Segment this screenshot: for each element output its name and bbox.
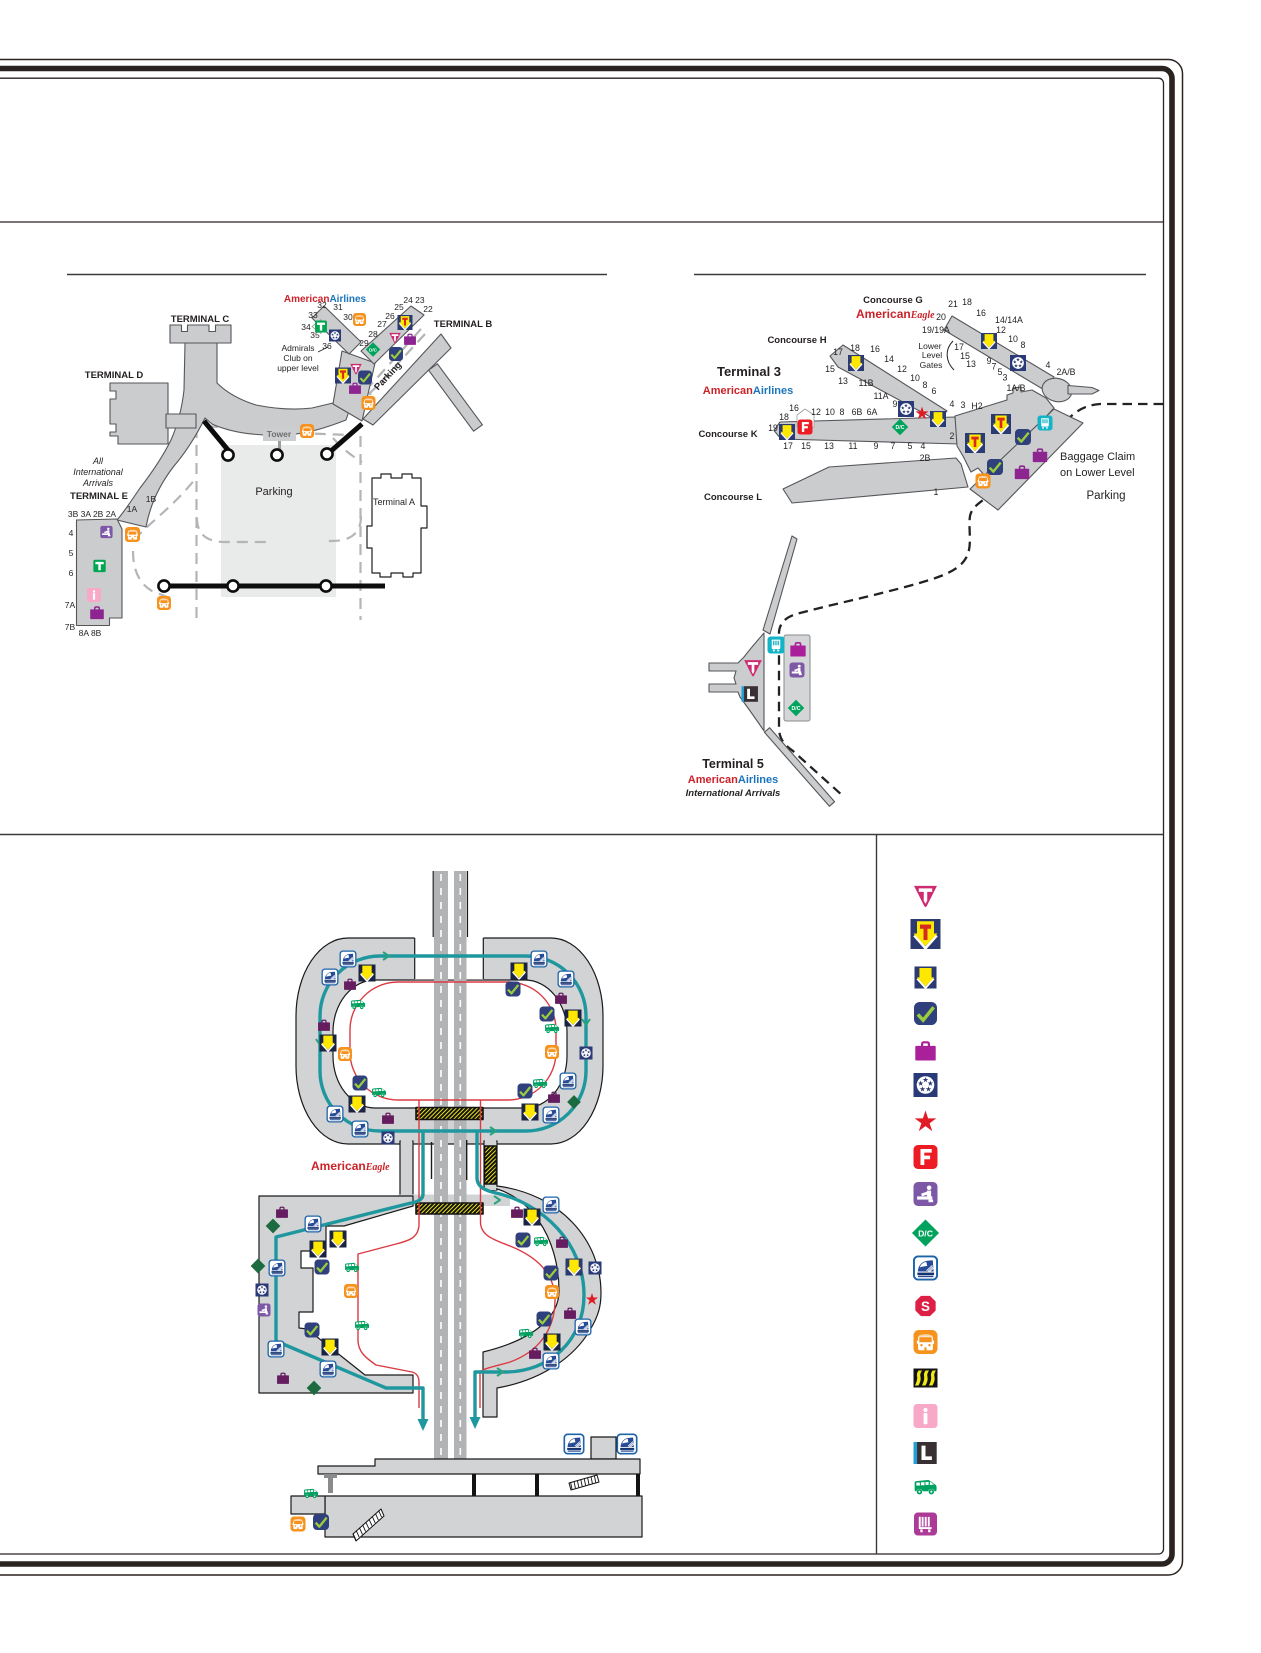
svg-text:13: 13 bbox=[824, 441, 834, 451]
svg-text:All: All bbox=[92, 456, 104, 466]
svg-text:31: 31 bbox=[333, 302, 343, 312]
svg-text:Baggage Claim: Baggage Claim bbox=[1060, 451, 1135, 463]
svg-text:14: 14 bbox=[884, 354, 894, 364]
svg-text:7B: 7B bbox=[65, 622, 76, 632]
svg-text:16: 16 bbox=[789, 403, 799, 413]
svg-text:Concourse K: Concourse K bbox=[698, 429, 757, 440]
svg-text:25: 25 bbox=[394, 302, 404, 312]
svg-text:4: 4 bbox=[69, 528, 74, 538]
svg-text:17: 17 bbox=[783, 441, 793, 451]
svg-text:5: 5 bbox=[908, 441, 913, 451]
svg-text:33: 33 bbox=[308, 310, 318, 320]
svg-text:27: 27 bbox=[377, 319, 387, 329]
svg-text:6: 6 bbox=[932, 386, 937, 396]
svg-text:16: 16 bbox=[870, 344, 880, 354]
svg-text:3B 3A 2B 2A: 3B 3A 2B 2A bbox=[68, 509, 117, 519]
svg-text:16: 16 bbox=[976, 308, 986, 318]
svg-text:Concourse G: Concourse G bbox=[863, 295, 923, 306]
svg-text:2: 2 bbox=[950, 431, 955, 441]
svg-text:14/14A: 14/14A bbox=[995, 315, 1023, 325]
svg-text:6: 6 bbox=[69, 568, 74, 578]
svg-text:22: 22 bbox=[423, 304, 433, 314]
svg-text:3: 3 bbox=[1003, 373, 1008, 383]
svg-text:TERMINAL B: TERMINAL B bbox=[434, 319, 493, 330]
svg-text:1: 1 bbox=[934, 487, 939, 497]
svg-text:TERMINAL C: TERMINAL C bbox=[171, 314, 230, 325]
svg-text:9: 9 bbox=[874, 441, 879, 451]
svg-text:AmericanAirlines: AmericanAirlines bbox=[703, 385, 794, 397]
svg-text:Level: Level bbox=[922, 350, 942, 360]
svg-text:International Arrivals: International Arrivals bbox=[686, 788, 781, 799]
svg-text:1A/B: 1A/B bbox=[1006, 383, 1025, 393]
svg-text:6B: 6B bbox=[852, 407, 863, 417]
svg-text:4: 4 bbox=[921, 441, 926, 451]
svg-text:on Lower Level: on Lower Level bbox=[1060, 467, 1135, 479]
svg-text:11B: 11B bbox=[859, 378, 874, 388]
svg-text:36: 36 bbox=[322, 341, 332, 351]
svg-text:30: 30 bbox=[343, 312, 353, 322]
svg-text:AmericanEagle: AmericanEagle bbox=[856, 307, 935, 321]
svg-text:H2: H2 bbox=[971, 401, 982, 411]
svg-text:TERMINAL E: TERMINAL E bbox=[70, 491, 128, 502]
svg-text:7: 7 bbox=[891, 441, 896, 451]
svg-text:Admirals: Admirals bbox=[281, 343, 314, 353]
svg-text:18: 18 bbox=[962, 297, 972, 307]
svg-text:8: 8 bbox=[1021, 340, 1026, 350]
svg-text:29: 29 bbox=[359, 338, 369, 348]
svg-text:20: 20 bbox=[936, 312, 946, 322]
svg-text:24 23: 24 23 bbox=[403, 295, 425, 305]
svg-text:15: 15 bbox=[825, 364, 835, 374]
svg-text:Gates: Gates bbox=[920, 360, 943, 370]
svg-text:8: 8 bbox=[840, 407, 845, 417]
svg-text:19/19A: 19/19A bbox=[922, 325, 950, 335]
svg-text:3: 3 bbox=[961, 400, 966, 410]
svg-text:10: 10 bbox=[910, 373, 920, 383]
svg-text:Parking: Parking bbox=[255, 486, 292, 498]
svg-text:7: 7 bbox=[992, 362, 997, 372]
svg-text:4: 4 bbox=[950, 399, 955, 409]
svg-text:18: 18 bbox=[850, 343, 860, 353]
svg-text:1A: 1A bbox=[127, 504, 138, 514]
svg-text:10: 10 bbox=[825, 407, 835, 417]
svg-text:12: 12 bbox=[897, 364, 907, 374]
svg-text:28: 28 bbox=[368, 329, 378, 339]
svg-text:8: 8 bbox=[923, 380, 928, 390]
svg-text:21: 21 bbox=[948, 299, 958, 309]
svg-text:International: International bbox=[73, 467, 124, 477]
svg-text:Parking: Parking bbox=[1087, 490, 1126, 502]
svg-text:upper level: upper level bbox=[277, 363, 319, 373]
svg-text:19: 19 bbox=[768, 423, 778, 433]
svg-text:Terminal 3: Terminal 3 bbox=[717, 364, 781, 379]
svg-text:Concourse L: Concourse L bbox=[704, 492, 762, 503]
svg-text:18: 18 bbox=[779, 412, 789, 422]
svg-text:AmericanAirlines: AmericanAirlines bbox=[688, 774, 779, 786]
svg-text:13: 13 bbox=[966, 359, 976, 369]
svg-text:4: 4 bbox=[1046, 360, 1051, 370]
svg-text:5: 5 bbox=[69, 548, 74, 558]
svg-text:Terminal A: Terminal A bbox=[373, 497, 415, 507]
svg-text:Arrivals: Arrivals bbox=[82, 478, 114, 488]
svg-text:15: 15 bbox=[801, 441, 811, 451]
svg-text:7A: 7A bbox=[65, 600, 76, 610]
svg-text:10: 10 bbox=[1008, 334, 1018, 344]
svg-text:8A 8B: 8A 8B bbox=[79, 628, 102, 638]
svg-text:12: 12 bbox=[996, 325, 1006, 335]
svg-text:13: 13 bbox=[838, 376, 848, 386]
svg-text:Club on: Club on bbox=[283, 353, 313, 363]
svg-text:11: 11 bbox=[848, 441, 857, 451]
svg-text:Terminal 5: Terminal 5 bbox=[702, 757, 764, 771]
svg-text:11A: 11A bbox=[874, 391, 889, 401]
svg-text:2B: 2B bbox=[920, 453, 931, 463]
svg-text:17: 17 bbox=[833, 347, 843, 357]
svg-text:AmericanEagle: AmericanEagle bbox=[311, 1159, 390, 1173]
svg-text:12: 12 bbox=[811, 407, 821, 417]
svg-text:32: 32 bbox=[317, 300, 327, 310]
svg-text:Tower: Tower bbox=[267, 429, 292, 439]
svg-text:2A/B: 2A/B bbox=[1056, 367, 1075, 377]
svg-text:1B: 1B bbox=[146, 494, 157, 504]
svg-text:9: 9 bbox=[893, 399, 898, 409]
svg-text:6A: 6A bbox=[867, 407, 878, 417]
svg-text:Concourse H: Concourse H bbox=[767, 335, 826, 346]
svg-text:TERMINAL D: TERMINAL D bbox=[85, 370, 144, 381]
